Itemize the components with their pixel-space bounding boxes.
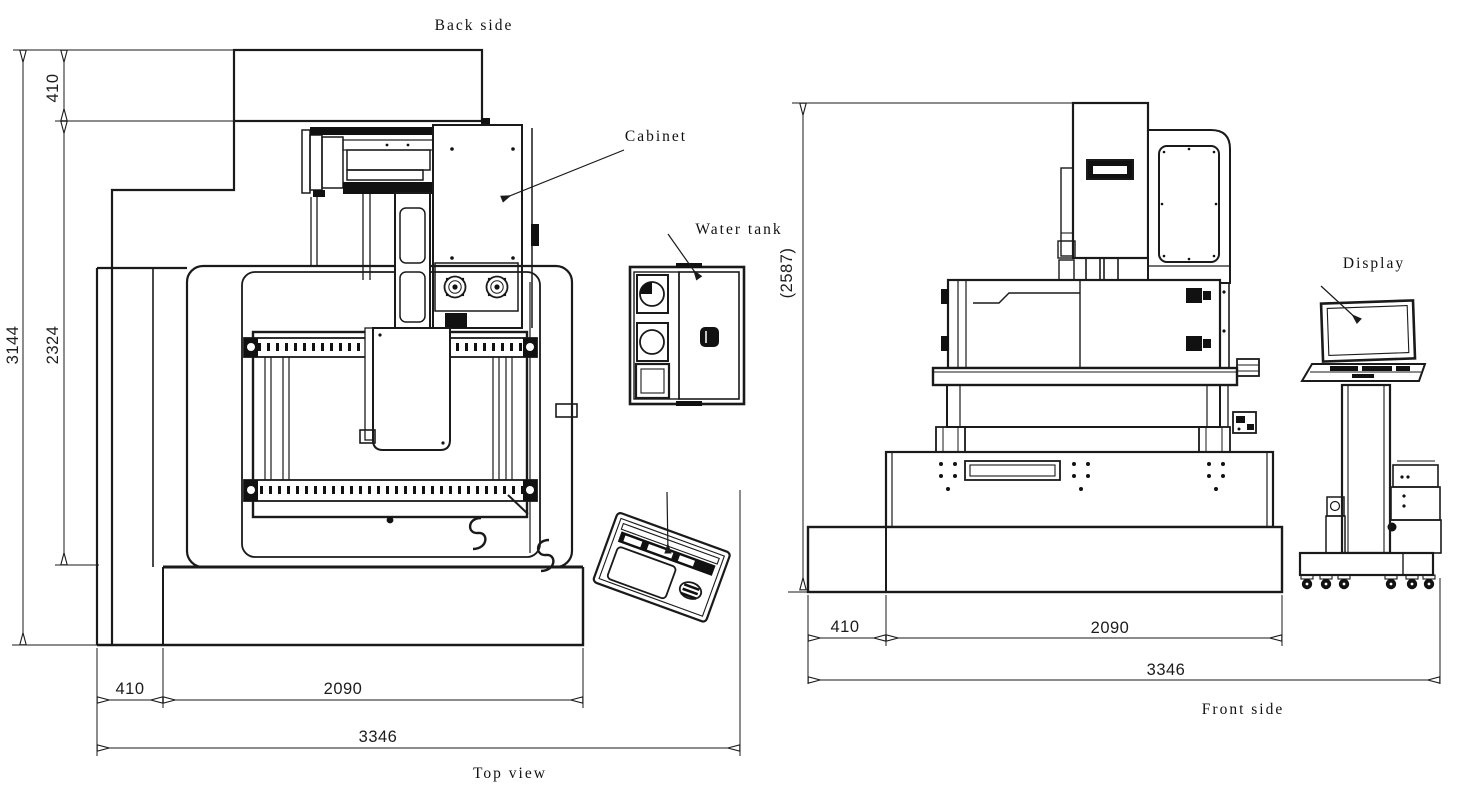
display-cart [1300, 300, 1441, 589]
top-view [12, 50, 744, 756]
door-handle [700, 327, 719, 347]
keyboard-deck [1302, 364, 1425, 381]
caster-wheel [1338, 575, 1350, 589]
caster-wheel [1406, 575, 1418, 589]
machine-column [1058, 103, 1148, 280]
caster-wheel [1385, 575, 1397, 589]
cabinet-label: Cabinet [625, 128, 687, 145]
front-view [788, 103, 1441, 684]
cart-base [1300, 553, 1433, 575]
z-column [395, 193, 430, 330]
caster-wheel [1301, 575, 1313, 589]
dim-410h-label: 410 [115, 680, 144, 698]
hose-clip-1 [470, 518, 485, 549]
laptop-screen [1321, 300, 1415, 361]
machine-drawing: Back side Top view Cabinet Water tank Di… [0, 0, 1457, 795]
dim-3144-label: 3144 [4, 326, 22, 365]
head-top-band [310, 127, 433, 135]
back-side-label: Back side [435, 17, 514, 34]
dim-2090f-label: 2090 [1091, 619, 1130, 637]
dim-2587-label: (2587) [778, 248, 796, 299]
dim-3346f-label: 3346 [1147, 661, 1186, 679]
cover-side-tab [556, 404, 577, 417]
control-console [593, 512, 731, 623]
controller-box [1390, 461, 1441, 553]
caster-wheels [1301, 575, 1435, 589]
water-tank [630, 263, 744, 406]
cart-column [1326, 385, 1397, 553]
dim-3346-label: 3346 [359, 728, 398, 746]
front-side-caption: Front side [1202, 701, 1284, 718]
caster-wheel [1320, 575, 1332, 589]
machine-table [933, 359, 1259, 452]
display-label: Display [1343, 255, 1405, 272]
dim-2090-label: 2090 [324, 680, 363, 698]
top-view-caption: Top view [473, 765, 547, 782]
dim-410v-label: 410 [44, 73, 62, 102]
side-handle [1237, 359, 1259, 376]
engineering-drawing-canvas: Back side Top view Cabinet Water tank Di… [0, 0, 1457, 795]
caster-wheel [1423, 575, 1435, 589]
cabinet-panel [433, 125, 539, 328]
perforated-strip-bottom [244, 480, 537, 501]
back-housing [234, 50, 482, 121]
cabinet-side-tab [531, 224, 539, 246]
dim-2324-label: 2324 [44, 326, 62, 365]
work-tank [941, 280, 1220, 368]
wire-head-plate [360, 328, 450, 450]
lower-base [808, 527, 1282, 592]
dim-410f-label: 410 [830, 618, 859, 636]
upper-base [886, 452, 1273, 527]
water-tank-label: Water tank [695, 221, 782, 238]
